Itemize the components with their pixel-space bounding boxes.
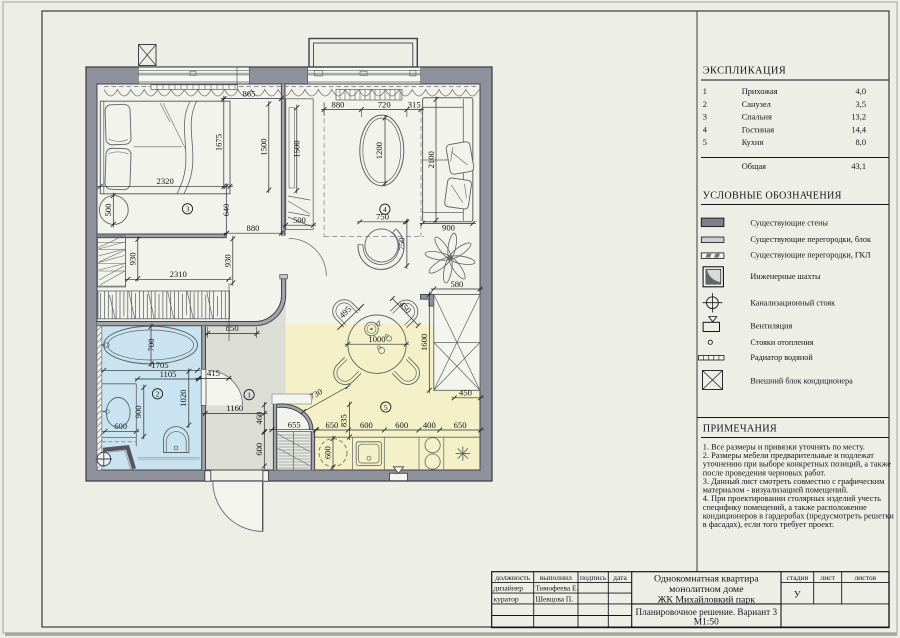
- svg-text:ЖК Михайловкий парк: ЖК Михайловкий парк: [658, 594, 756, 605]
- svg-text:Спальня: Спальня: [742, 113, 772, 122]
- svg-text:500: 500: [103, 204, 113, 217]
- svg-text:Кухня: Кухня: [742, 138, 764, 147]
- svg-text:Существующие перегородки, ГКЛ: Существующие перегородки, ГКЛ: [750, 251, 871, 260]
- svg-text:5: 5: [384, 403, 388, 412]
- svg-text:3,5: 3,5: [856, 100, 866, 109]
- svg-text:3: 3: [703, 113, 707, 122]
- svg-text:600: 600: [322, 446, 332, 459]
- svg-text:1000: 1000: [368, 334, 385, 344]
- svg-text:315: 315: [408, 100, 421, 110]
- svg-text:580: 580: [450, 279, 463, 289]
- svg-text:600: 600: [254, 443, 264, 456]
- svg-text:930: 930: [222, 254, 232, 267]
- svg-text:650: 650: [325, 420, 338, 430]
- svg-text:ПРИМЕЧАНИЯ: ПРИМЕЧАНИЯ: [703, 424, 777, 435]
- svg-text:655: 655: [288, 420, 301, 430]
- svg-text:835: 835: [338, 414, 348, 427]
- svg-text:в фасадах), если того требует: в фасадах), если того требует проект.: [703, 520, 834, 529]
- svg-text:5: 5: [703, 138, 707, 147]
- svg-text:Канализационный стояк: Канализационный стояк: [750, 299, 835, 308]
- svg-text:450: 450: [459, 388, 472, 398]
- svg-text:должность: должность: [495, 573, 530, 582]
- svg-text:Инженерные шахты: Инженерные шахты: [750, 272, 821, 281]
- svg-text:2320: 2320: [157, 176, 174, 186]
- svg-text:460: 460: [254, 412, 264, 425]
- svg-text:1500: 1500: [258, 138, 268, 155]
- svg-text:лист: лист: [820, 573, 835, 582]
- svg-text:1600: 1600: [419, 334, 429, 351]
- svg-text:865: 865: [243, 88, 256, 98]
- svg-text:листов: листов: [854, 573, 876, 582]
- svg-text:720: 720: [378, 100, 391, 110]
- svg-text:УСЛОВНЫЕ ОБОЗНАЧЕНИЯ: УСЛОВНЫЕ ОБОЗНАЧЕНИЯ: [703, 191, 842, 202]
- svg-text:Вентиляция: Вентиляция: [750, 322, 792, 331]
- svg-text:1105: 1105: [160, 369, 177, 379]
- svg-text:Внешний блок кондиционера: Внешний блок кондиционера: [750, 376, 853, 385]
- svg-text:500: 500: [293, 215, 306, 225]
- svg-text:Стояки отопления: Стояки отопления: [750, 338, 813, 347]
- svg-text:Тимофеева Е.: Тимофеева Е.: [536, 584, 579, 593]
- svg-text:850: 850: [226, 323, 239, 333]
- svg-text:750: 750: [376, 212, 389, 222]
- svg-text:880: 880: [332, 100, 345, 110]
- svg-text:Гостиная: Гостиная: [742, 125, 775, 134]
- svg-text:930: 930: [127, 253, 137, 266]
- svg-text:подпись: подпись: [580, 573, 607, 582]
- svg-text:600: 600: [395, 420, 408, 430]
- svg-text:4,0: 4,0: [856, 87, 866, 96]
- svg-text:ЭКСПЛИКАЦИЯ: ЭКСПЛИКАЦИЯ: [703, 66, 786, 77]
- svg-text:Прихожая: Прихожая: [742, 87, 778, 96]
- svg-text:2310: 2310: [170, 269, 187, 279]
- svg-text:стадия: стадия: [787, 573, 809, 582]
- svg-text:монолитном доме: монолитном доме: [669, 584, 744, 595]
- svg-text:2100: 2100: [426, 151, 436, 168]
- svg-text:700: 700: [146, 339, 156, 352]
- svg-text:900: 900: [442, 223, 455, 233]
- svg-text:куратор: куратор: [494, 594, 519, 603]
- svg-text:2: 2: [156, 390, 160, 399]
- svg-text:880: 880: [247, 223, 260, 233]
- svg-text:Существующие стены: Существующие стены: [750, 218, 828, 227]
- svg-text:600: 600: [114, 421, 127, 431]
- svg-text:8,0: 8,0: [856, 138, 866, 147]
- svg-text:дата: дата: [613, 573, 627, 582]
- svg-text:У: У: [794, 591, 801, 601]
- svg-text:дизайнер: дизайнер: [494, 584, 524, 593]
- svg-text:выполнил: выполнил: [540, 573, 572, 582]
- svg-text:Общая: Общая: [742, 162, 766, 171]
- svg-text:1500: 1500: [292, 140, 302, 157]
- svg-text:600: 600: [360, 420, 373, 430]
- svg-text:Однокомнатная квартира: Однокомнатная квартира: [654, 573, 759, 584]
- svg-text:900: 900: [133, 405, 143, 418]
- svg-text:Санузел: Санузел: [742, 100, 771, 109]
- svg-text:14,4: 14,4: [851, 125, 866, 134]
- svg-text:43,1: 43,1: [851, 162, 866, 171]
- svg-text:Планировочное решение. Вариант: Планировочное решение. Вариант 3: [636, 607, 778, 617]
- svg-text:1: 1: [703, 87, 707, 96]
- svg-text:2: 2: [703, 100, 707, 109]
- svg-text:1: 1: [247, 391, 251, 400]
- svg-text:Радиатор водяной: Радиатор водяной: [750, 353, 813, 362]
- svg-text:1200: 1200: [374, 142, 384, 159]
- svg-text:415: 415: [207, 368, 220, 378]
- svg-text:3: 3: [186, 205, 190, 214]
- svg-text:1675: 1675: [213, 134, 223, 151]
- svg-text:Шевцова П.: Шевцова П.: [536, 594, 574, 603]
- svg-text:13,2: 13,2: [851, 113, 866, 122]
- svg-text:Существующие перегородки, блок: Существующие перегородки, блок: [750, 235, 871, 244]
- svg-text:1020: 1020: [178, 390, 188, 407]
- svg-text:400: 400: [423, 420, 436, 430]
- svg-text:М1:50: М1:50: [694, 617, 719, 627]
- svg-text:650: 650: [454, 420, 467, 430]
- svg-text:640: 640: [222, 204, 231, 217]
